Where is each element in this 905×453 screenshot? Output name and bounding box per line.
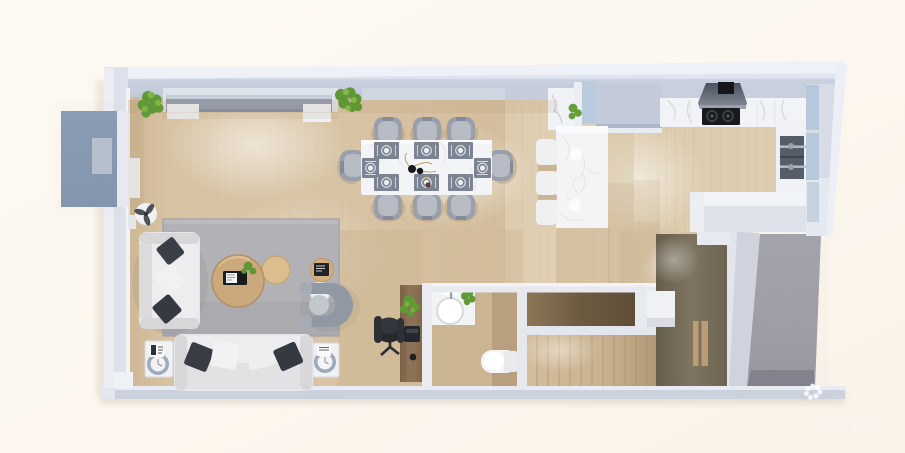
svg-text:cireba: cireba	[791, 408, 874, 439]
